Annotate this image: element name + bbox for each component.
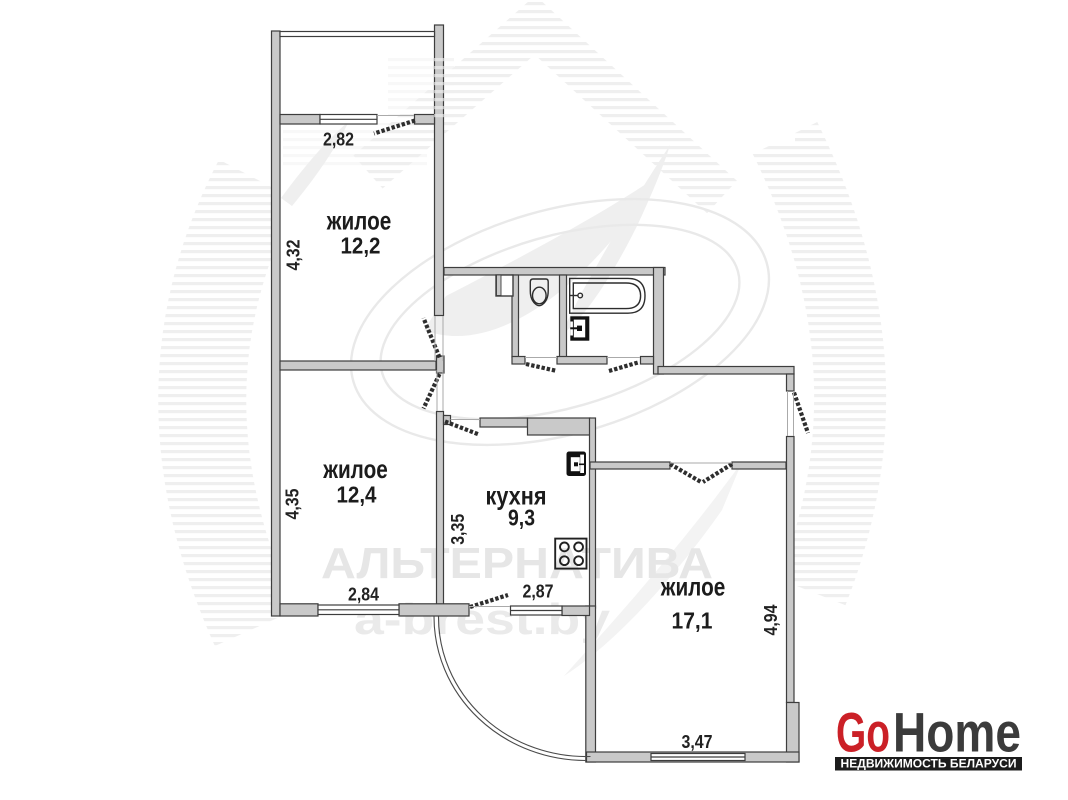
svg-text:4,35: 4,35	[282, 489, 303, 520]
svg-text:2,87: 2,87	[523, 580, 554, 601]
svg-text:9,3: 9,3	[508, 505, 535, 531]
svg-text:12,4: 12,4	[337, 481, 377, 507]
svg-text:жилое: жилое	[326, 205, 391, 235]
svg-text:Home: Home	[893, 702, 1021, 764]
svg-text:жилое: жилое	[660, 572, 725, 602]
svg-text:жилое: жилое	[322, 454, 387, 484]
svg-text:17,1: 17,1	[672, 608, 713, 634]
svg-text:4,94: 4,94	[760, 604, 781, 636]
svg-text:3,47: 3,47	[682, 731, 713, 752]
svg-text:3,35: 3,35	[447, 514, 468, 545]
svg-text:2,84: 2,84	[348, 584, 380, 605]
svg-text:12,2: 12,2	[341, 233, 381, 259]
svg-text:НЕДВИЖИМОСТЬ БЕЛАРУСИ: НЕДВИЖИМОСТЬ БЕЛАРУСИ	[841, 759, 1017, 771]
svg-text:Go: Go	[836, 702, 890, 764]
svg-text:4,32: 4,32	[283, 240, 304, 271]
svg-text:АЛЬТЕРНАТИВА: АЛЬТЕРНАТИВА	[321, 539, 713, 588]
svg-text:2,82: 2,82	[323, 128, 354, 149]
